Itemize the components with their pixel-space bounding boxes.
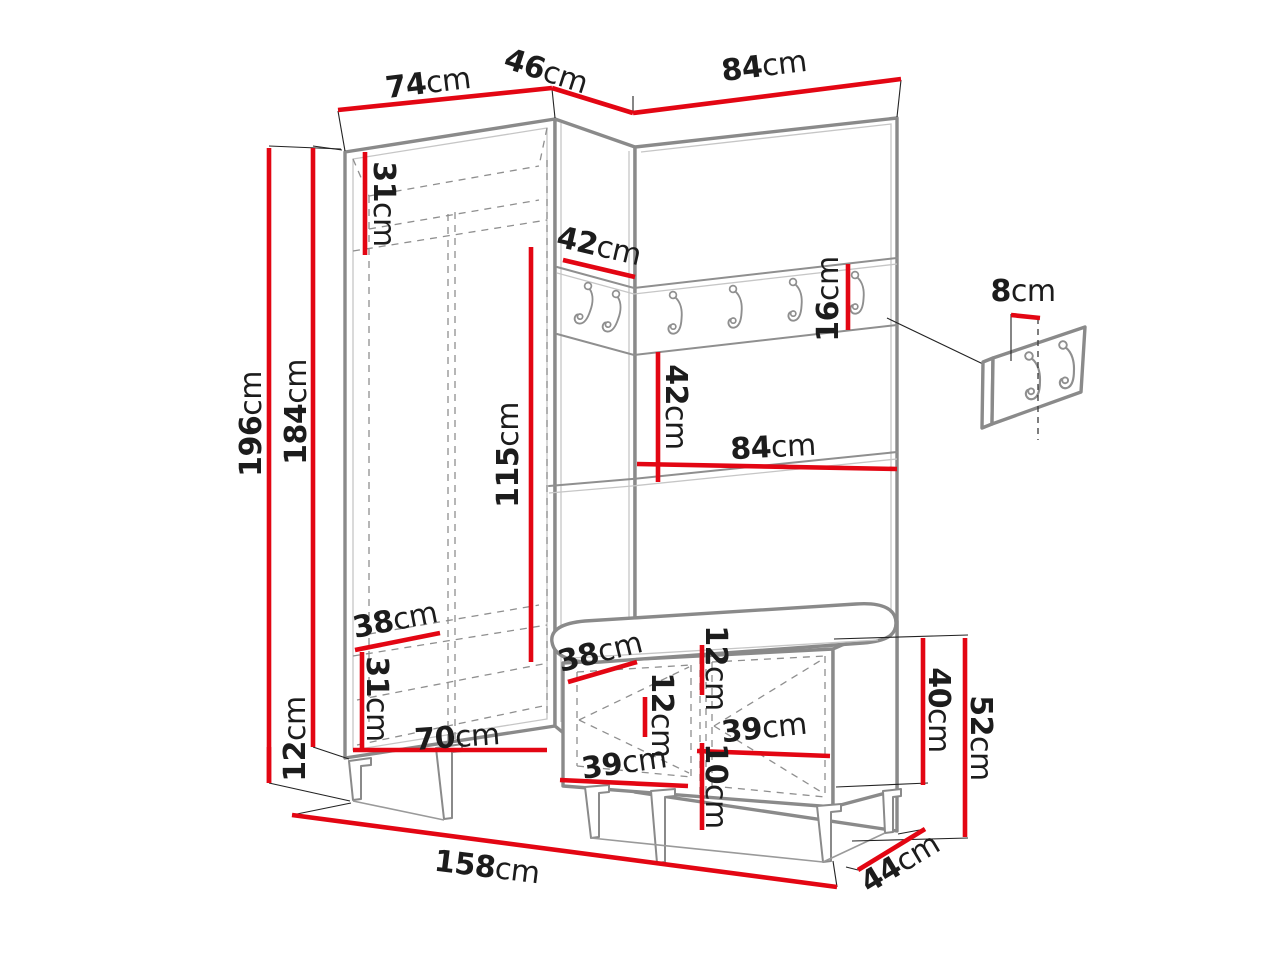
dimension-label: 84cm [729,427,816,466]
dimension-label: 12cm [699,625,734,710]
dimension-label: 158cm [432,843,541,891]
dimension-top-width-84: 84cm [633,43,901,113]
dimension-bench-depth-44: 44cm [854,826,945,900]
bench-side [833,621,897,807]
dimension-label: 8cm [990,274,1055,309]
dimension-label: 42cm [659,364,694,449]
dimension-label: 184cm [279,359,314,465]
dimension-line [292,815,837,887]
dimension-label: 31cm [360,656,395,741]
dimension-label: 70cm [413,717,501,758]
dimension-bench-total-52: 52cm [964,638,999,837]
dimension-rail-height-16: 16cm [811,256,849,341]
dimension-bench-plinth-10: 10cm [699,743,734,830]
dimension-top-corner-46: 46cm [500,41,633,113]
dimension-label: 12cm [278,696,313,781]
wall-hook-panel [887,314,1085,440]
dimension-label: 44cm [854,826,945,900]
callout-leader-line [887,318,983,364]
dimension-height-184: 184cm [279,148,314,747]
dimension-label: 31cm [367,161,402,246]
dimension-label: 40cm [922,667,957,752]
diagram-canvas: 74cm46cm84cm196cm184cm12cm31cm42cm16cm11… [0,0,1273,955]
dimension-top-shelf-31: 31cm [365,152,402,255]
dimension-line [1011,315,1040,318]
furniture-dimension-diagram: 74cm46cm84cm196cm184cm12cm31cm42cm16cm11… [0,0,1273,955]
dimension-base-height-12: 12cm [269,696,313,783]
dimension-label: 16cm [811,256,846,341]
dimension-total-width-158: 158cm [292,815,837,891]
dimension-label: 52cm [964,695,999,780]
dimension-label: 196cm [234,371,269,477]
dimension-label: 10cm [699,743,734,828]
dimension-label: 84cm [719,43,808,88]
dimension-bench-height-40: 40cm [922,638,957,785]
dimension-bench-top-12: 12cm [699,625,734,710]
dimension-panel-hook-8: 8cm [990,274,1055,319]
dimension-height-196: 196cm [234,148,270,783]
dimension-line [633,79,901,113]
dimension-lower-31: 31cm [360,652,395,748]
dimension-label: 115cm [491,402,526,508]
